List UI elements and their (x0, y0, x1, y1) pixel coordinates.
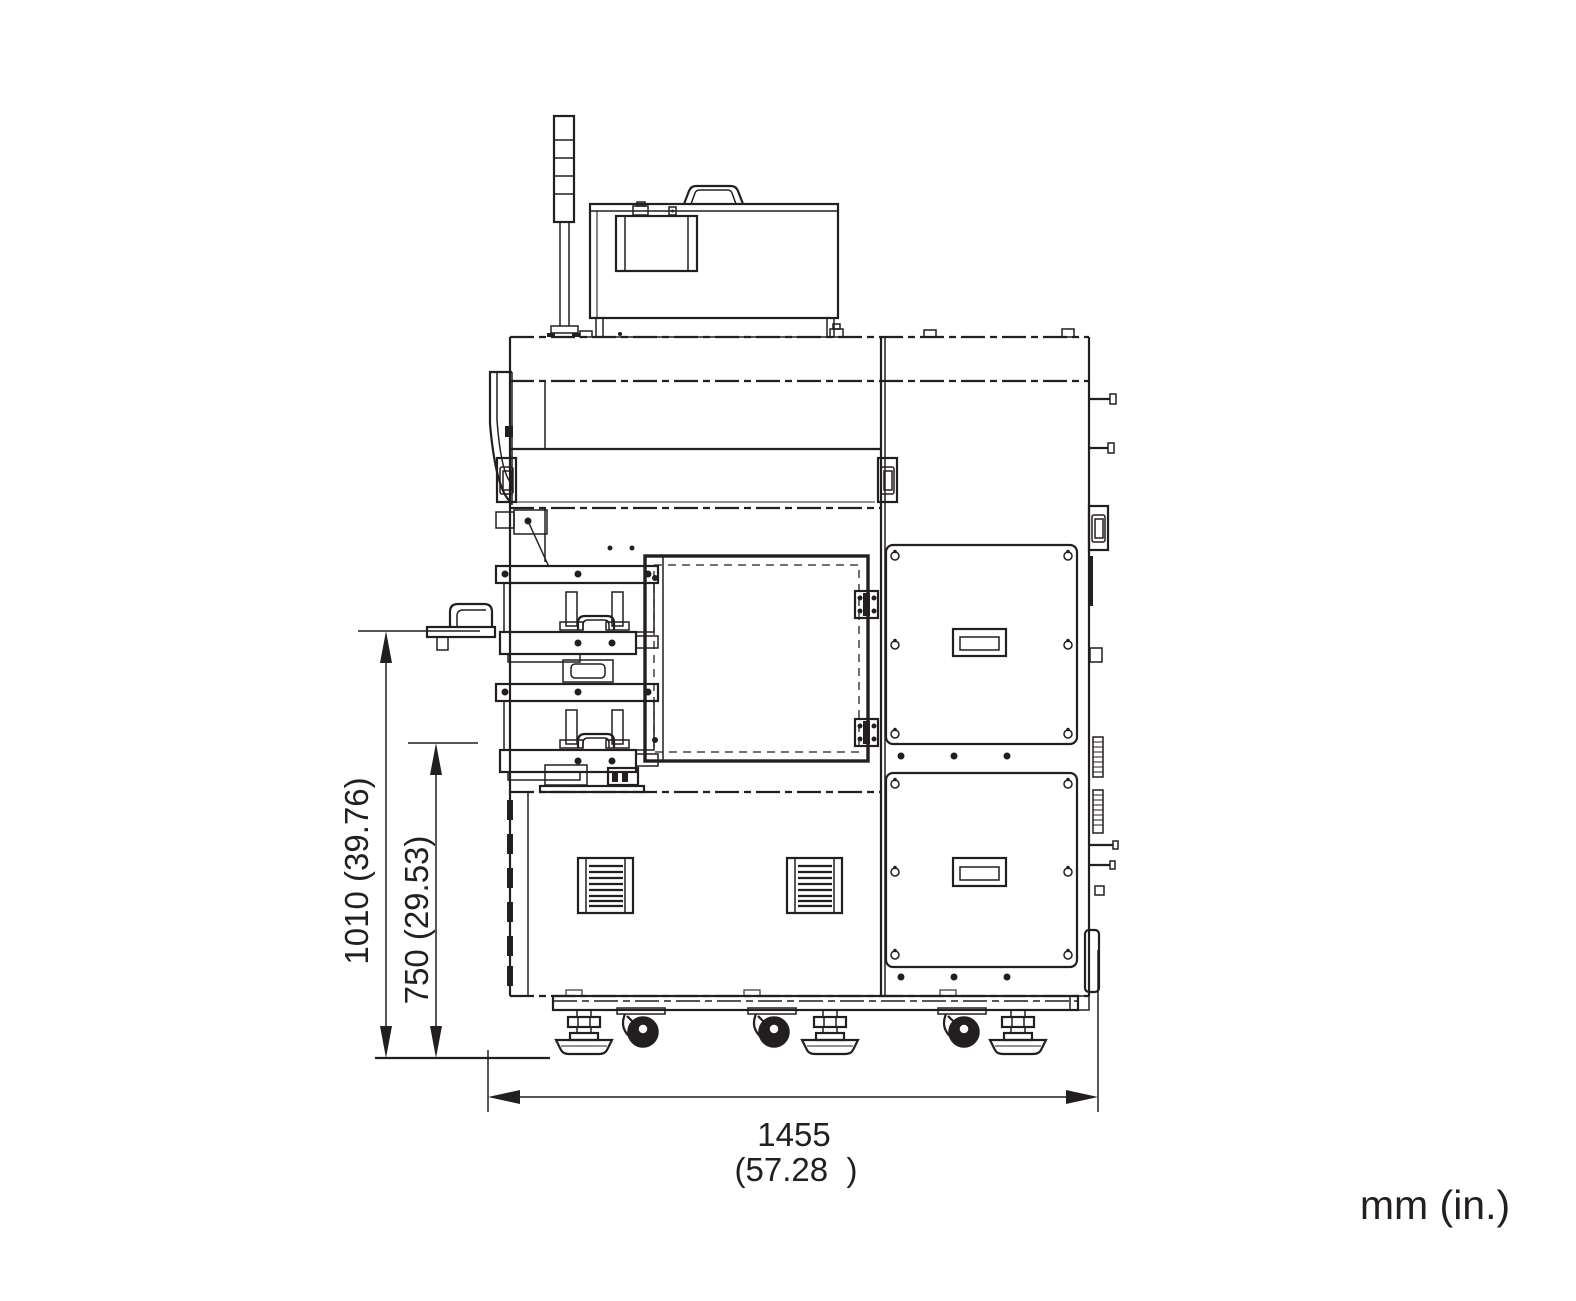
dim-width-mm-label: 1455 (757, 1116, 830, 1153)
lower-panel-handle (953, 858, 1006, 886)
latch-right-side (1089, 506, 1108, 550)
cassette-stage-upper (496, 566, 658, 662)
display-screen (616, 216, 697, 271)
base-frame (553, 990, 1089, 1010)
lower-access-panel (886, 773, 1077, 967)
terminal-strip-lower (1093, 790, 1103, 833)
dimension-annotations: 1010 (39.76) 750 (29.53) 1455 (57.28 ) (338, 631, 1098, 1188)
stage-base-unit (540, 765, 644, 792)
control-box (590, 186, 838, 337)
stage-pedestal (563, 660, 613, 682)
caster-2 (748, 1008, 796, 1047)
dim-overall-height-label: 1010 (39.76) (338, 777, 375, 964)
upper-access-panel (886, 545, 1077, 744)
leveling-foot-3 (990, 1010, 1046, 1054)
vent-left (578, 858, 633, 913)
leveling-foot-1 (556, 1010, 612, 1054)
left-bracket (496, 510, 549, 567)
dim-table-height: 750 (29.53) (398, 743, 478, 1058)
machine-front-view (375, 116, 1118, 1058)
caster-3 (938, 1008, 986, 1047)
side-table (427, 604, 495, 650)
caster-1 (617, 1008, 665, 1047)
center-door (645, 556, 878, 761)
dim-table-height-label: 750 (29.53) (398, 836, 435, 1005)
dim-width-in-label: (57.28 ) (735, 1151, 858, 1188)
vent-right (787, 858, 842, 913)
units-note: mm (in.) (1360, 1182, 1510, 1228)
machine-drawing: 1010 (39.76) 750 (29.53) 1455 (57.28 ) m… (0, 0, 1576, 1301)
carry-handle (684, 186, 743, 204)
terminal-strip-upper (1093, 737, 1103, 777)
upper-panel-handle (953, 629, 1006, 656)
leveling-foot-2 (802, 1010, 858, 1054)
dim-overall-width: 1455 (57.28 ) (488, 950, 1098, 1188)
signal-tower (547, 116, 580, 337)
drawing-canvas: 1010 (39.76) 750 (29.53) 1455 (57.28 ) m… (0, 0, 1576, 1301)
right-cabinet (886, 545, 1077, 981)
